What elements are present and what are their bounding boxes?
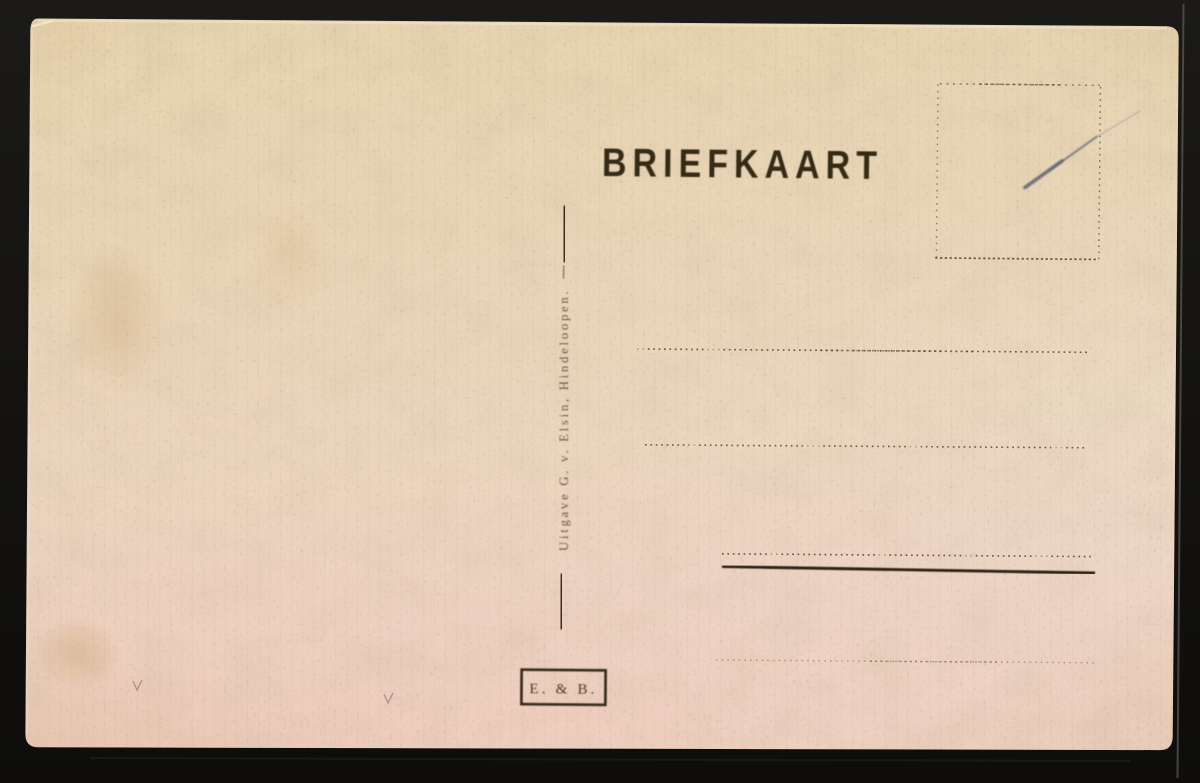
- svg-text:E. & B.: E. & B.: [529, 681, 597, 698]
- svg-text:BRIEFKAART: BRIEFKAART: [602, 141, 883, 188]
- svg-text:Uitgave G. v. Elsin, Hindelo: Uitgave G. v. Elsin, Hindeloopen.: [557, 289, 571, 551]
